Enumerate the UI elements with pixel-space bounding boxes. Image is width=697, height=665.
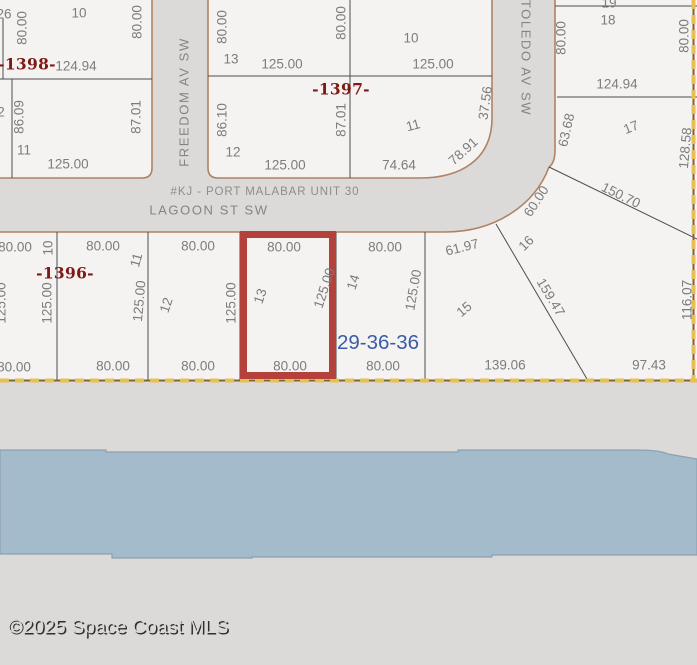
dimension-label: 80.00 bbox=[677, 19, 692, 53]
dimension-label: 80.00 bbox=[366, 359, 400, 374]
dimension-label: 125.00 bbox=[264, 158, 305, 173]
plat-block-number: -1397- bbox=[312, 79, 370, 98]
dimension-label: 139.06 bbox=[484, 358, 525, 373]
dimension-label: 87.01 bbox=[334, 103, 349, 137]
watermark-text: ©2025 Space Coast MLS bbox=[8, 616, 228, 638]
dimension-label: 124.94 bbox=[596, 77, 638, 92]
section-township-range-label: 29-36-36 bbox=[337, 331, 419, 354]
dimension-label: 86.10 bbox=[215, 103, 230, 137]
lot-number-label: 13 bbox=[223, 52, 238, 67]
dimension-label: 80.00 bbox=[215, 10, 230, 44]
dimension-label: 125.00 bbox=[47, 157, 88, 172]
dimension-label: 80.00 bbox=[0, 240, 32, 255]
dimension-label: 26 bbox=[0, 7, 12, 22]
dimension-label: 80.00 bbox=[267, 240, 301, 255]
dimension-label: 125.00 bbox=[412, 57, 453, 72]
dimension-label: 116.07 bbox=[680, 280, 695, 320]
dimension-label: 80.00 bbox=[0, 360, 31, 375]
dimension-label: 125.00 bbox=[261, 57, 302, 72]
dimension-label: 80.00 bbox=[130, 5, 145, 39]
dimension-label: 80.00 bbox=[181, 239, 215, 254]
dimension-label: 80.00 bbox=[181, 359, 215, 374]
dimension-label: 80.00 bbox=[96, 359, 130, 374]
dimension-label: 80.00 bbox=[368, 240, 402, 255]
lot-number-label: 19 bbox=[601, 0, 616, 11]
dimension-label: 97.43 bbox=[632, 358, 666, 373]
lot-number-label: 11 bbox=[17, 143, 31, 158]
dimension-label: 80.00 bbox=[86, 239, 120, 254]
street-name-label: LAGOON ST SW bbox=[149, 203, 268, 218]
dimension-label: 86.09 bbox=[12, 100, 27, 134]
lot-number-label: 18 bbox=[600, 13, 615, 28]
lot-number-label: 12 bbox=[225, 145, 240, 160]
plat-map-canvas[interactable]: 261080.0080.00-1398-124.94286.0987.01111… bbox=[0, 0, 697, 665]
plat-block-number: -1396- bbox=[36, 263, 94, 282]
dimension-label: 2 bbox=[0, 105, 5, 120]
dimension-label: 80.00 bbox=[334, 6, 349, 40]
dimension-label: 125.00 bbox=[224, 282, 239, 323]
street-name-label: FREEDOM AV SW bbox=[177, 37, 192, 167]
dimension-label: 124.94 bbox=[55, 59, 97, 74]
watermark: ©2025 Space Coast MLS©2025 Space Coast M… bbox=[8, 616, 230, 640]
water-area bbox=[0, 450, 697, 558]
dimension-label: 87.01 bbox=[129, 100, 144, 134]
plat-unit-title: #KJ - PORT MALABAR UNIT 30 bbox=[171, 186, 360, 198]
dimension-label: 74.64 bbox=[382, 158, 416, 173]
dimension-label: 125.00 bbox=[0, 282, 9, 323]
dimension-label: 80.00 bbox=[15, 11, 30, 45]
dimension-label: 125.00 bbox=[40, 282, 55, 323]
street-name-label: TOLEDO AV SW bbox=[518, 0, 533, 116]
lot-number-label: 10 bbox=[41, 240, 56, 255]
lot-number-label: 10 bbox=[403, 31, 418, 46]
dimension-label: 80.00 bbox=[273, 359, 307, 374]
dimension-label: 80.00 bbox=[554, 21, 569, 55]
plat-block-number: -1398- bbox=[0, 54, 56, 73]
map-viewport[interactable]: 261080.0080.00-1398-124.94286.0987.01111… bbox=[0, 0, 697, 665]
lot-number-label: 10 bbox=[71, 6, 86, 21]
